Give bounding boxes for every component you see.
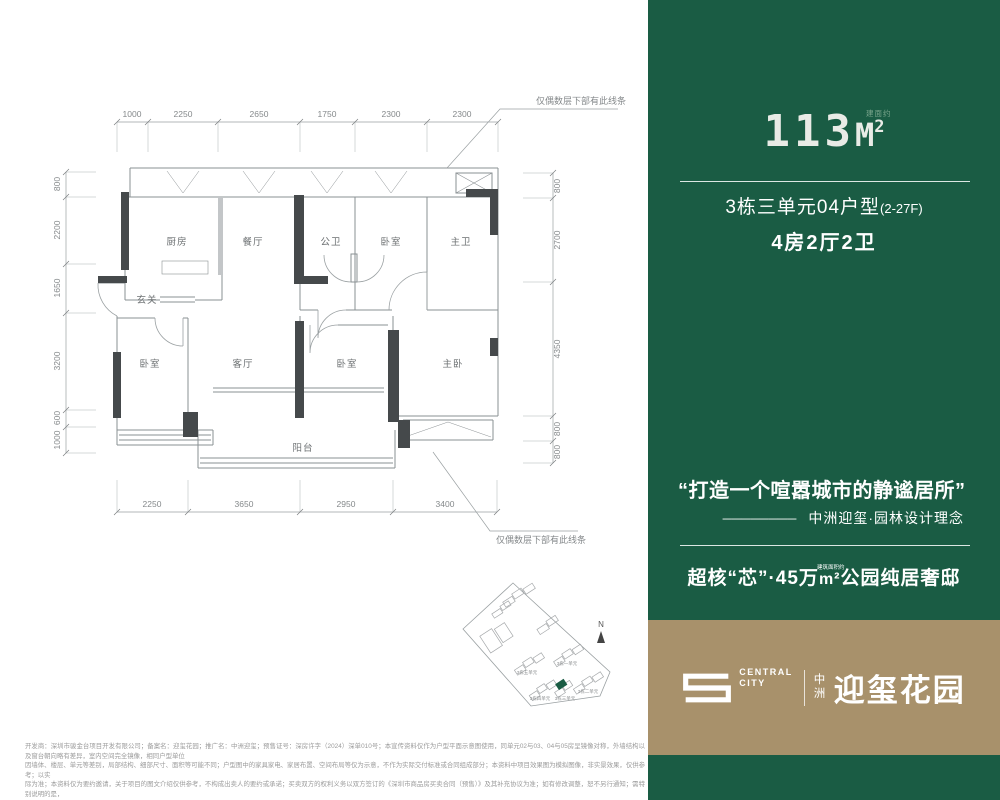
area-number: 113	[764, 106, 855, 157]
north-label: N	[598, 620, 604, 629]
site-map: 3栋一单元 3栋五单元 3栋二单元 3栋四单元 3栋三单元 N	[455, 575, 650, 740]
room-label-living: 客厅	[232, 358, 253, 370]
room-label-bedroom-left: 卧室	[139, 358, 160, 370]
room-label-dining: 餐厅	[242, 236, 263, 248]
dim-right-2: 4350	[552, 339, 562, 358]
divider-top	[680, 181, 970, 182]
brand-cn-small: 中洲	[814, 674, 828, 700]
dim-left-3: 3200	[52, 351, 62, 370]
brand-en-line1: CENTRAL	[739, 667, 793, 678]
dim-top-3: 1750	[318, 109, 337, 119]
dim-top-1: 2250	[174, 109, 193, 119]
room-label-kitchen: 厨房	[166, 236, 187, 248]
site-label-unit2: 3栋二单元	[578, 688, 599, 695]
dim-top-4: 2300	[382, 109, 401, 119]
dim-right-3: 800	[552, 422, 562, 436]
note-bottom: 仅偶数层下部有此线条	[496, 534, 586, 545]
slogan-pre: 超核“芯”·45万	[687, 568, 818, 589]
dim-right-1: 2700	[552, 230, 562, 249]
floorplan-panel: 1000 2250 2650 1750 2300 2300 800 2200 1…	[0, 0, 648, 800]
area-headline: 113M2 建面约	[648, 106, 1000, 157]
note-top: 仅偶数层下部有此线条	[536, 95, 626, 106]
area-superscript: 2	[874, 117, 884, 137]
room-label-bedroom-mid: 卧室	[336, 358, 357, 370]
leader-annotations: 仅偶数层下部有此线条 仅偶数层下部有此线条	[433, 95, 626, 545]
info-panel: 113M2 建面约 3栋三单元04户型(2-27F) 4房2厅2卫 “打造一个喧…	[648, 0, 1000, 800]
divider-bottom	[680, 545, 970, 546]
attribution-dash: ────────	[723, 511, 797, 526]
room-label-foyer: 玄关	[136, 294, 157, 306]
quote-text: “打造一个喧嚣城市的静谧居所”	[678, 474, 980, 503]
dim-right-0: 800	[552, 179, 562, 193]
dim-bottom-0: 2250	[143, 499, 162, 509]
disclaimer-line-3: 际为准；本资料仅为要约邀请，关于项目的图文介绍仅供参考，不构成出卖人的要约或承诺…	[25, 780, 645, 799]
dim-left-2: 1650	[52, 278, 62, 297]
unit-name: 3栋三单元04户型	[725, 197, 880, 218]
site-label-unit1: 3栋一单元	[557, 660, 578, 667]
room-label-bedroom-top: 卧室	[380, 236, 401, 248]
brand-logo-row: CENTRAL CITY 中洲 迎玺花园	[682, 665, 966, 710]
brand-en: CENTRAL CITY	[739, 667, 793, 690]
room-label-master-bedroom: 主卧	[442, 358, 463, 370]
area-unit: M	[855, 116, 874, 154]
attribution-text: 中洲迎玺·园林设计理念	[808, 510, 964, 526]
site-label-unit4: 3栋四单元	[530, 695, 551, 702]
slogan-post: 公园纯居奢邸	[841, 568, 961, 589]
disclaimer-line-2: 因墙体、楼层、单元等差别，局部结构、细部尺寸、面积等可能不同；户型图中的家具家电…	[25, 761, 645, 780]
room-label-master-bath: 主卫	[450, 236, 471, 248]
room-label-guest-bath: 公卫	[320, 237, 341, 248]
unit-floors: (2-27F)	[880, 201, 923, 216]
unit-info: 3栋三单元04户型(2-27F)	[648, 192, 1000, 219]
dim-top-0: 1000	[123, 109, 142, 119]
central-city-logo-icon	[682, 672, 732, 704]
slogan-unit: m²	[819, 571, 841, 588]
dim-left-0: 800	[52, 177, 62, 191]
room-count: 4房2厅2卫	[648, 226, 1000, 255]
slogan: 超核“芯”·45万建筑面积约m²公园纯居奢邸	[648, 563, 1000, 590]
floor-plan-drawing: 1000 2250 2650 1750 2300 2300 800 2200 1…	[0, 0, 648, 570]
dim-bottom-3: 3400	[436, 499, 455, 509]
disclaimer-line-1: 开发商：深圳市骏金台项目开发有限公司；备案名：迎玺花园；推广名：中洲迎玺；预售证…	[25, 742, 645, 761]
dim-left-4: 600	[52, 411, 62, 425]
area-note: 建面约	[866, 108, 892, 119]
dim-left-5: 1000	[52, 430, 62, 449]
dim-bottom-2: 2950	[337, 499, 356, 509]
brand-en-line2: CITY	[739, 678, 793, 689]
dim-right-4: 800	[552, 445, 562, 459]
slogan-unit-note: 建筑面积约	[817, 563, 845, 571]
site-buildings	[480, 582, 604, 701]
north-arrow: N	[597, 620, 605, 643]
site-label-unit3: 3栋三单元	[555, 695, 576, 702]
disclaimer-text: 开发商：深圳市骏金台项目开发有限公司；备案名：迎玺花园；推广名：中洲迎玺；预售证…	[25, 742, 645, 800]
dim-left-1: 2200	[52, 220, 62, 239]
quote-attribution: ────────中洲迎玺·园林设计理念	[723, 508, 964, 528]
site-label-unit5: 3栋五单元	[517, 669, 538, 676]
poster-canvas: 1000 2250 2650 1750 2300 2300 800 2200 1…	[0, 0, 1000, 800]
brand-cn-large: 迎玺花园	[834, 665, 966, 710]
site-highlight-unit	[555, 679, 567, 690]
walls-structural	[98, 189, 498, 448]
dim-top-2: 2650	[250, 109, 269, 119]
brand-band: CENTRAL CITY 中洲 迎玺花园	[648, 620, 1000, 755]
north-arrow-icon	[597, 631, 605, 643]
dim-bottom-1: 3650	[235, 499, 254, 509]
logo-divider	[804, 670, 805, 706]
dim-top-5: 2300	[453, 109, 472, 119]
room-label-balcony: 阳台	[292, 442, 313, 454]
